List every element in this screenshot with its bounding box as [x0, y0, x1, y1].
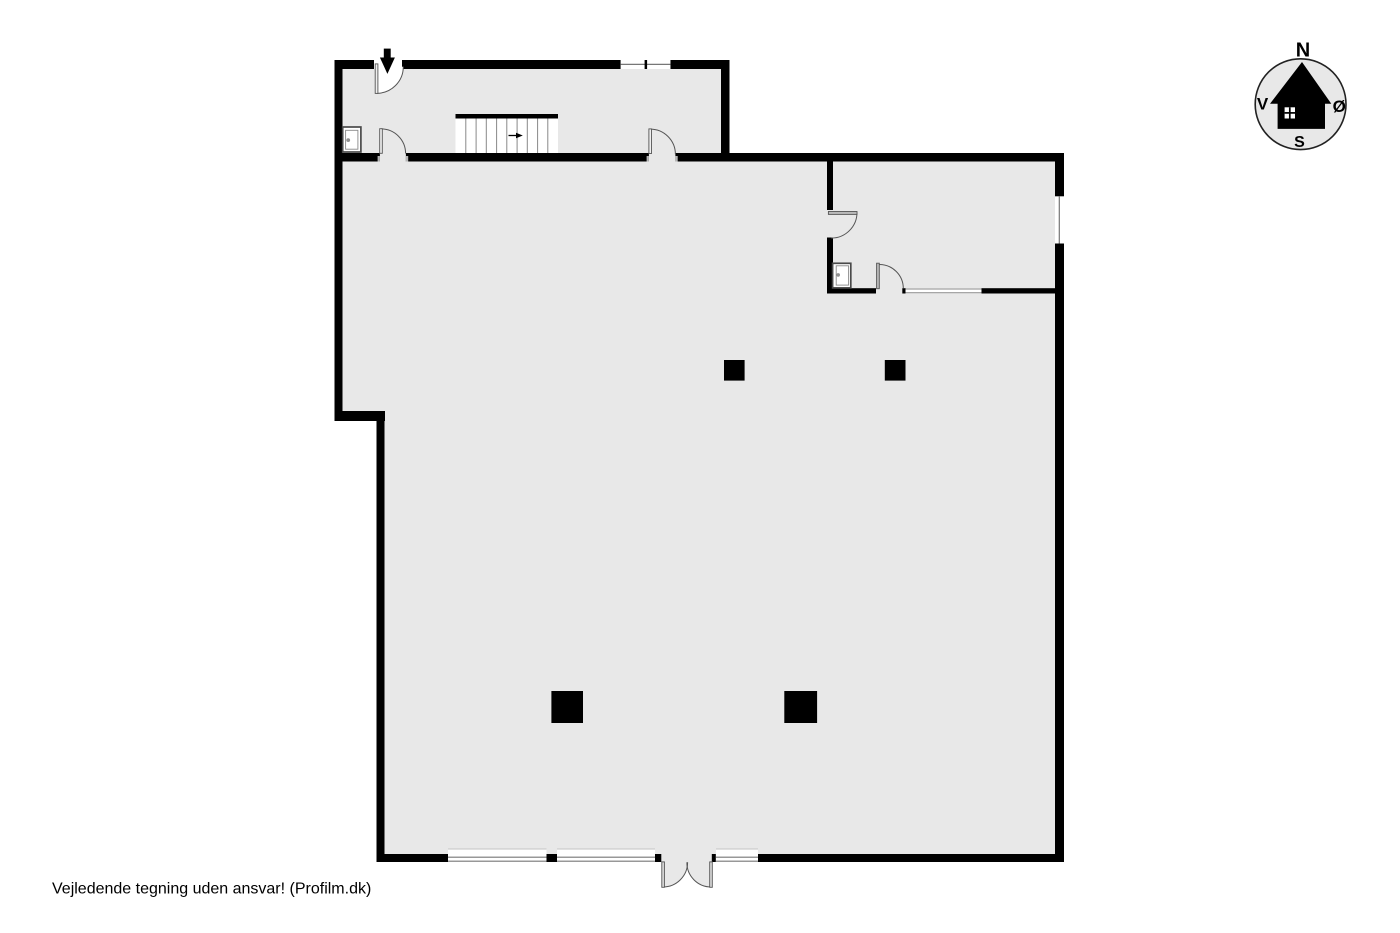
- svg-text:N: N: [1296, 39, 1310, 61]
- svg-text:Ø: Ø: [1333, 97, 1346, 116]
- svg-text:Vejledende tegning uden ansvar: Vejledende tegning uden ansvar! (Profilm…: [52, 881, 371, 898]
- svg-text:V: V: [1257, 94, 1269, 113]
- svg-text:S: S: [1294, 134, 1305, 151]
